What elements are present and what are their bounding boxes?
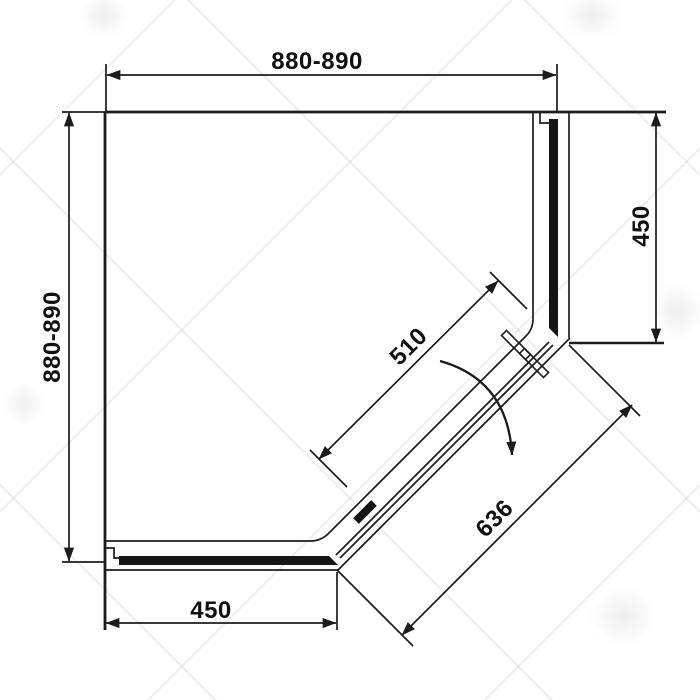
dimension-label-left: 880-890	[39, 291, 66, 383]
dimension-label-bottom: 450	[190, 597, 232, 624]
glass-panel-bottom	[119, 556, 338, 565]
dimension-line	[319, 281, 498, 459]
wall-profile-bracket-bottom	[105, 548, 120, 558]
door-assembly	[336, 331, 553, 558]
extension-line	[569, 345, 640, 416]
shower-enclosure-plan-drawing: 880-890 880-890 450 450 510	[0, 0, 700, 700]
dimension-bottom: 450	[106, 572, 337, 630]
glass-panels	[119, 119, 558, 565]
dimension-label-diagonal: 636	[470, 494, 518, 542]
dimension-right: 450	[569, 113, 664, 343]
rim-diagonal-line	[338, 338, 570, 570]
extension-line	[310, 450, 347, 487]
dimension-door: 510	[310, 272, 527, 487]
wall-profile-bracket-top	[540, 112, 549, 123]
door-panel-line-inner	[340, 345, 553, 558]
dimension-label-top: 880-890	[271, 48, 363, 75]
inner-frame-line	[105, 112, 533, 541]
dimension-label-door: 510	[384, 322, 432, 370]
door-hinge	[356, 503, 374, 521]
walls	[105, 112, 666, 630]
dimension-left: 880-890	[39, 112, 105, 562]
door-panel-line-outer	[336, 342, 549, 555]
dimension-line	[402, 405, 632, 635]
dimension-label-right: 450	[628, 205, 655, 247]
glass-panel-right	[549, 119, 558, 337]
drawing-canvas: 880-890 880-890 450 450 510	[0, 0, 700, 700]
dimension-top: 880-890	[106, 48, 557, 112]
extension-line	[490, 272, 527, 309]
